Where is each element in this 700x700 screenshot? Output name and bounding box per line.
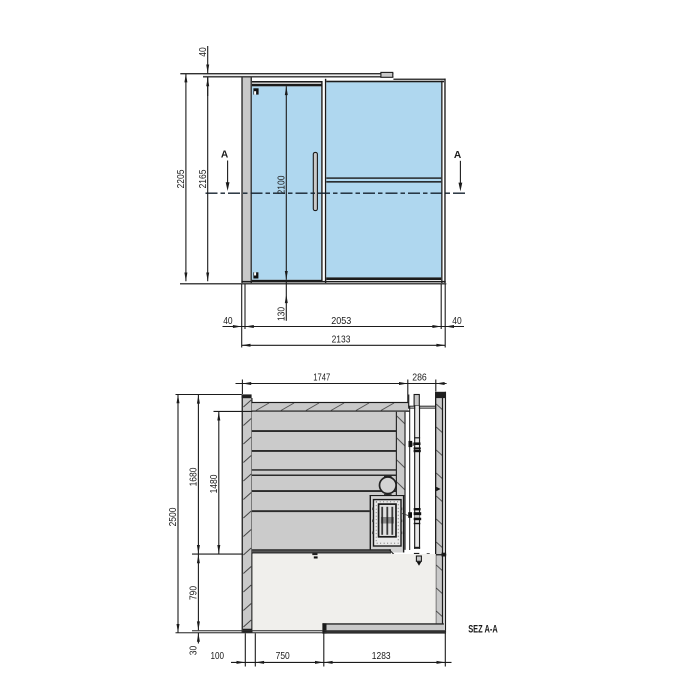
svg-text:2053: 2053 bbox=[331, 316, 351, 327]
svg-text:A: A bbox=[454, 150, 462, 161]
svg-text:2100: 2100 bbox=[277, 175, 288, 194]
svg-text:SEZ A-A: SEZ A-A bbox=[468, 624, 498, 636]
svg-text:40: 40 bbox=[198, 47, 209, 57]
svg-text:750: 750 bbox=[276, 651, 290, 662]
svg-text:2500: 2500 bbox=[168, 507, 179, 526]
svg-text:100: 100 bbox=[210, 651, 224, 662]
svg-text:130: 130 bbox=[277, 307, 288, 321]
svg-text:1747: 1747 bbox=[313, 373, 330, 384]
svg-text:A: A bbox=[221, 150, 229, 161]
svg-text:1480: 1480 bbox=[209, 474, 220, 493]
svg-text:1283: 1283 bbox=[372, 651, 391, 662]
svg-text:40: 40 bbox=[452, 316, 462, 327]
svg-text:286: 286 bbox=[412, 373, 427, 384]
svg-text:1680: 1680 bbox=[189, 467, 200, 486]
svg-text:2133: 2133 bbox=[332, 335, 351, 346]
svg-text:30: 30 bbox=[189, 646, 200, 656]
svg-text:790: 790 bbox=[189, 586, 200, 600]
svg-text:2205: 2205 bbox=[176, 169, 187, 188]
svg-text:2165: 2165 bbox=[198, 169, 209, 188]
svg-text:40: 40 bbox=[223, 316, 233, 327]
